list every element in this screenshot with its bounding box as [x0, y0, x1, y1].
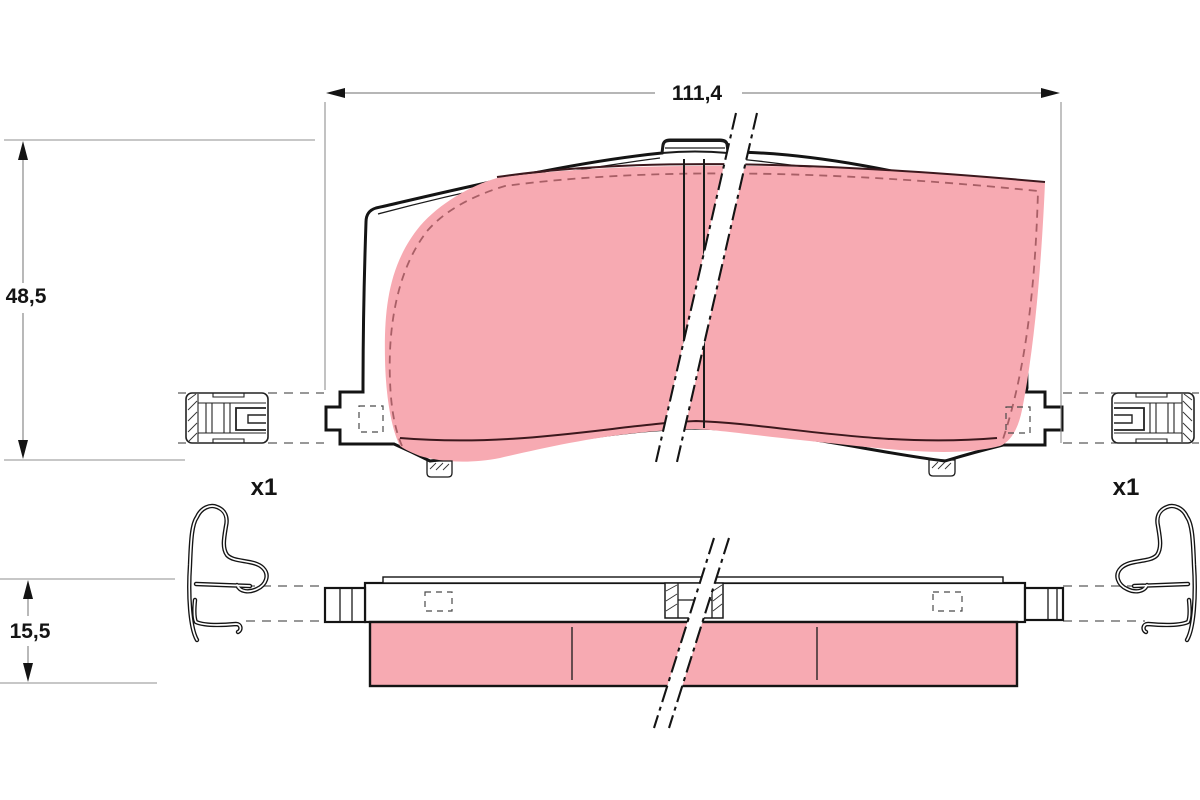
brake-pad-technical-drawing: 111,4 48,5 15,5 x1 x1 — [0, 0, 1200, 800]
side-backplate-top-strip — [383, 577, 1003, 583]
right-quantity-label: x1 — [1113, 474, 1140, 501]
side-ear-left-outline — [325, 588, 365, 622]
piston-clip-left — [186, 393, 268, 443]
thickness-dimension-label: 15,5 — [10, 620, 51, 643]
height-dimension-label: 48,5 — [6, 285, 47, 308]
side-ear-left — [325, 588, 365, 622]
piston-clip-right — [1112, 393, 1194, 443]
drawing-canvas: 111,4 48,5 15,5 x1 x1 — [0, 0, 1200, 800]
left-quantity-label: x1 — [251, 474, 278, 501]
width-dimension-label: 111,4 — [672, 82, 723, 105]
side-ear-right — [1025, 588, 1063, 620]
